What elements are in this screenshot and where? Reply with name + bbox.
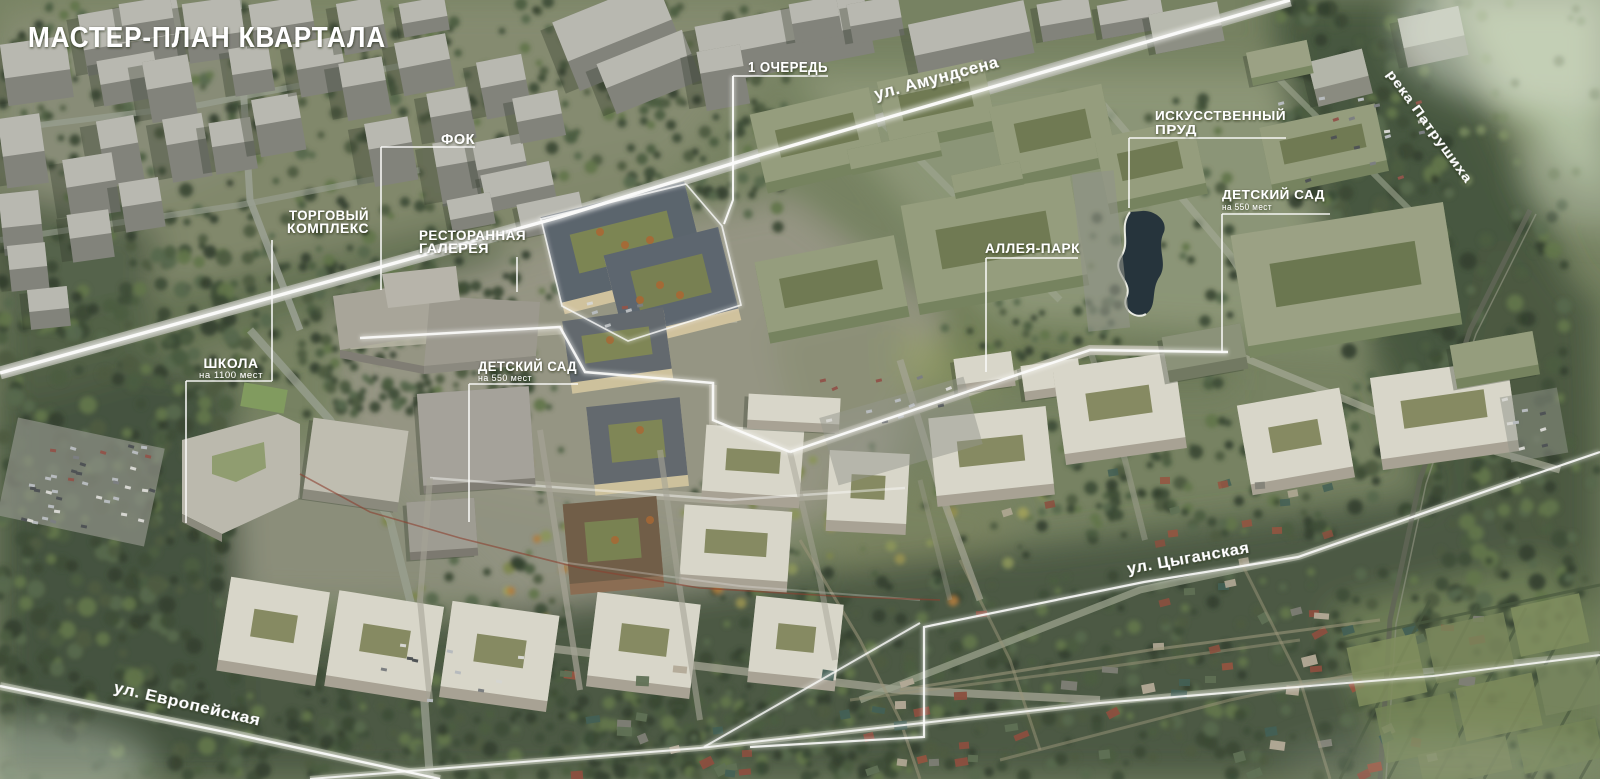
- svg-text:ШКОЛА: ШКОЛА: [204, 356, 259, 371]
- svg-text:КОМПЛЕКС: КОМПЛЕКС: [287, 221, 369, 236]
- svg-text:на 550 мест: на 550 мест: [478, 373, 532, 383]
- svg-text:на 550 мест: на 550 мест: [1222, 202, 1272, 212]
- svg-text:ИСКУССТВЕННЫЙ: ИСКУССТВЕННЫЙ: [1155, 108, 1286, 123]
- svg-text:ДЕТСКИЙ САД: ДЕТСКИЙ САД: [478, 359, 577, 374]
- svg-text:ПРУД: ПРУД: [1155, 122, 1197, 137]
- svg-text:ФОК: ФОК: [441, 132, 475, 148]
- svg-text:ГАЛЕРЕЯ: ГАЛЕРЕЯ: [419, 241, 489, 256]
- svg-text:ДЕТСКИЙ САД: ДЕТСКИЙ САД: [1222, 187, 1325, 202]
- svg-text:АЛЛЕЯ-ПАРК: АЛЛЕЯ-ПАРК: [985, 241, 1080, 256]
- svg-text:на 1100 мест: на 1100 мест: [199, 370, 263, 380]
- svg-text:МАСТЕР-ПЛАН КВАРТАЛА: МАСТЕР-ПЛАН КВАРТАЛА: [28, 22, 386, 54]
- svg-text:1 ОЧЕРЕДЬ: 1 ОЧЕРЕДЬ: [748, 60, 828, 76]
